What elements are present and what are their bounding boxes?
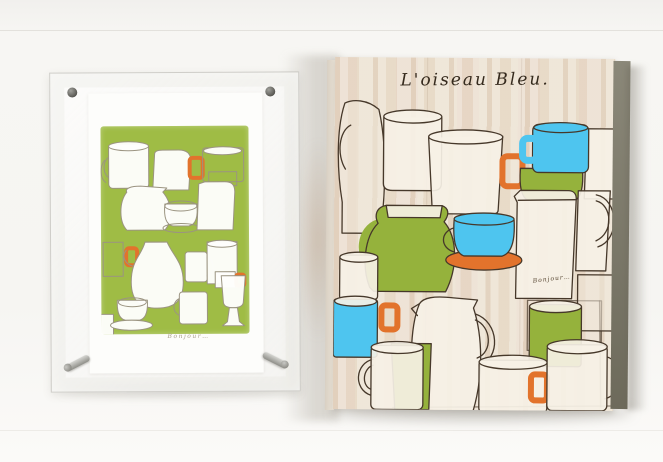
white-mug-bottom-left (371, 345, 423, 409)
panel-side-shadow (627, 66, 647, 410)
surface-edge-line (0, 430, 663, 431)
outline-cup (577, 275, 613, 331)
white-saucer (110, 320, 152, 330)
goblet-cup (221, 276, 245, 308)
frame-screw-top-left (67, 88, 77, 98)
orange-mug-handle (190, 158, 203, 178)
panel-cups-artwork (333, 97, 616, 411)
white-carafe (197, 182, 235, 230)
photo-scene: Bonjour… L'oiseau Bleu. (0, 0, 663, 462)
wooden-panel: L'oiseau Bleu. (333, 57, 615, 411)
print-illustration (100, 126, 249, 335)
acrylic-frame: Bonjour… (49, 71, 301, 392)
white-mug-bottom (179, 292, 207, 324)
white-pitcher (121, 186, 171, 230)
partial-handle (101, 160, 106, 182)
teacup (165, 204, 198, 226)
white-jug (153, 150, 191, 190)
mug-rim (384, 110, 442, 123)
print-cups-artwork (100, 126, 249, 335)
art-print-paper: Bonjour… (88, 93, 263, 374)
white-mug-bottom-right (547, 345, 607, 411)
teacup-bottom (117, 300, 147, 320)
blue-mug-rim (204, 147, 242, 155)
green-pitcher-rim (386, 205, 442, 217)
mug-rim (340, 252, 378, 262)
artist-signature: Bonjour… (168, 333, 258, 340)
green-mug-rim (529, 300, 581, 312)
frame-screw-top-right (265, 86, 275, 96)
orange-mug-handle (502, 156, 522, 186)
goblet-foot (222, 308, 244, 326)
blue-patch-cup (103, 242, 123, 276)
orange-handle (381, 305, 397, 329)
blue-mug-handle (523, 138, 537, 160)
frame-stand-pin-right (261, 351, 287, 369)
blue-mug-rim (534, 122, 588, 132)
mug-rim (371, 341, 423, 353)
white-pitcher-right (576, 191, 611, 271)
wall-edge-line (0, 30, 663, 31)
small-jug (185, 252, 207, 282)
panel-title: L'oiseau Bleu. (375, 69, 575, 90)
mug-rim (109, 142, 149, 151)
cylinder-rim (207, 240, 237, 247)
cup-rim (479, 355, 547, 369)
teacup-rim (454, 213, 514, 225)
blue-mug-rim (334, 296, 376, 306)
frame-stand-pin-left (65, 354, 91, 372)
mug-rim (429, 130, 503, 145)
mug-rim (547, 340, 607, 354)
green-pitcher (365, 205, 455, 292)
white-mug (428, 136, 503, 215)
